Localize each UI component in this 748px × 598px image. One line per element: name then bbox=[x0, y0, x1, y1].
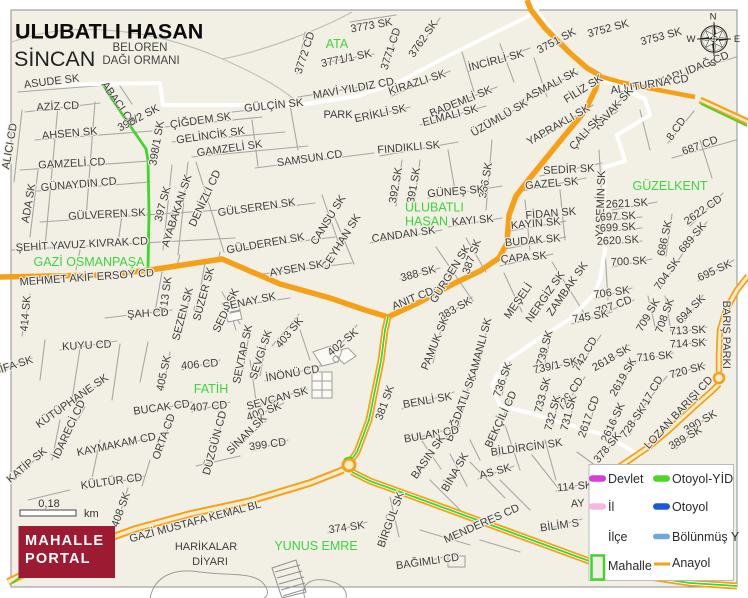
svg-text:BELOREN: BELOREN bbox=[113, 42, 168, 54]
svg-text:GAZİ OSMANPAŞA: GAZİ OSMANPAŞA bbox=[34, 255, 146, 269]
svg-text:DİYARI: DİYARI bbox=[192, 555, 228, 568]
svg-text:Mahalle: Mahalle bbox=[608, 559, 652, 573]
svg-text:Devlet: Devlet bbox=[608, 472, 644, 486]
svg-text:713 SK: 713 SK bbox=[670, 324, 707, 338]
svg-text:İl: İl bbox=[608, 500, 614, 514]
svg-text:Otoyol-YİD: Otoyol-YİD bbox=[672, 472, 733, 486]
svg-text:699 SK: 699 SK bbox=[600, 221, 637, 235]
svg-text:Otoyol: Otoyol bbox=[672, 500, 708, 514]
svg-text:YUNUS EMRE: YUNUS EMRE bbox=[274, 539, 357, 553]
svg-text:E: E bbox=[734, 34, 740, 45]
svg-text:MAHALLE: MAHALLE bbox=[25, 533, 104, 549]
svg-text:2621 SK: 2621 SK bbox=[605, 197, 648, 211]
svg-text:0,18: 0,18 bbox=[38, 498, 59, 510]
svg-text:FATİH: FATİH bbox=[194, 382, 229, 396]
svg-text:DAĞI ORMANI: DAĞI ORMANI bbox=[102, 54, 179, 67]
svg-text:PARK: PARK bbox=[323, 109, 353, 121]
svg-text:GÜZELKENT: GÜZELKENT bbox=[632, 179, 707, 193]
svg-text:SEDİR SK: SEDİR SK bbox=[543, 161, 596, 177]
svg-text:km: km bbox=[84, 508, 99, 520]
svg-text:ATA: ATA bbox=[326, 37, 349, 51]
svg-text:AZİZ CD: AZİZ CD bbox=[36, 99, 79, 114]
svg-text:714 SK: 714 SK bbox=[670, 337, 707, 351]
svg-text:HARİKALAR: HARİKALAR bbox=[175, 540, 237, 553]
svg-text:ULUBATLI HASAN: ULUBATLI HASAN bbox=[15, 20, 203, 44]
svg-text:ŞAH CD: ŞAH CD bbox=[127, 307, 169, 321]
svg-text:Bölünmüş Y: Bölünmüş Y bbox=[672, 530, 740, 544]
svg-text:ULUBATLI: ULUBATLI bbox=[405, 201, 464, 215]
svg-text:PORTAL: PORTAL bbox=[25, 551, 91, 567]
svg-text:700 SK: 700 SK bbox=[611, 255, 648, 269]
svg-text:Anayol: Anayol bbox=[672, 556, 710, 570]
svg-text:HASAN: HASAN bbox=[405, 215, 448, 229]
svg-text:N: N bbox=[710, 12, 717, 23]
svg-text:AY: AY bbox=[570, 497, 586, 510]
svg-text:BARIŞ PARKI: BARIŞ PARKI bbox=[720, 301, 732, 369]
svg-text:İlçe: İlçe bbox=[608, 530, 628, 544]
svg-text:SİNCAN: SİNCAN bbox=[14, 47, 95, 71]
svg-text:S: S bbox=[710, 58, 716, 69]
svg-text:W: W bbox=[687, 34, 696, 45]
svg-text:2620 SK: 2620 SK bbox=[596, 234, 639, 248]
